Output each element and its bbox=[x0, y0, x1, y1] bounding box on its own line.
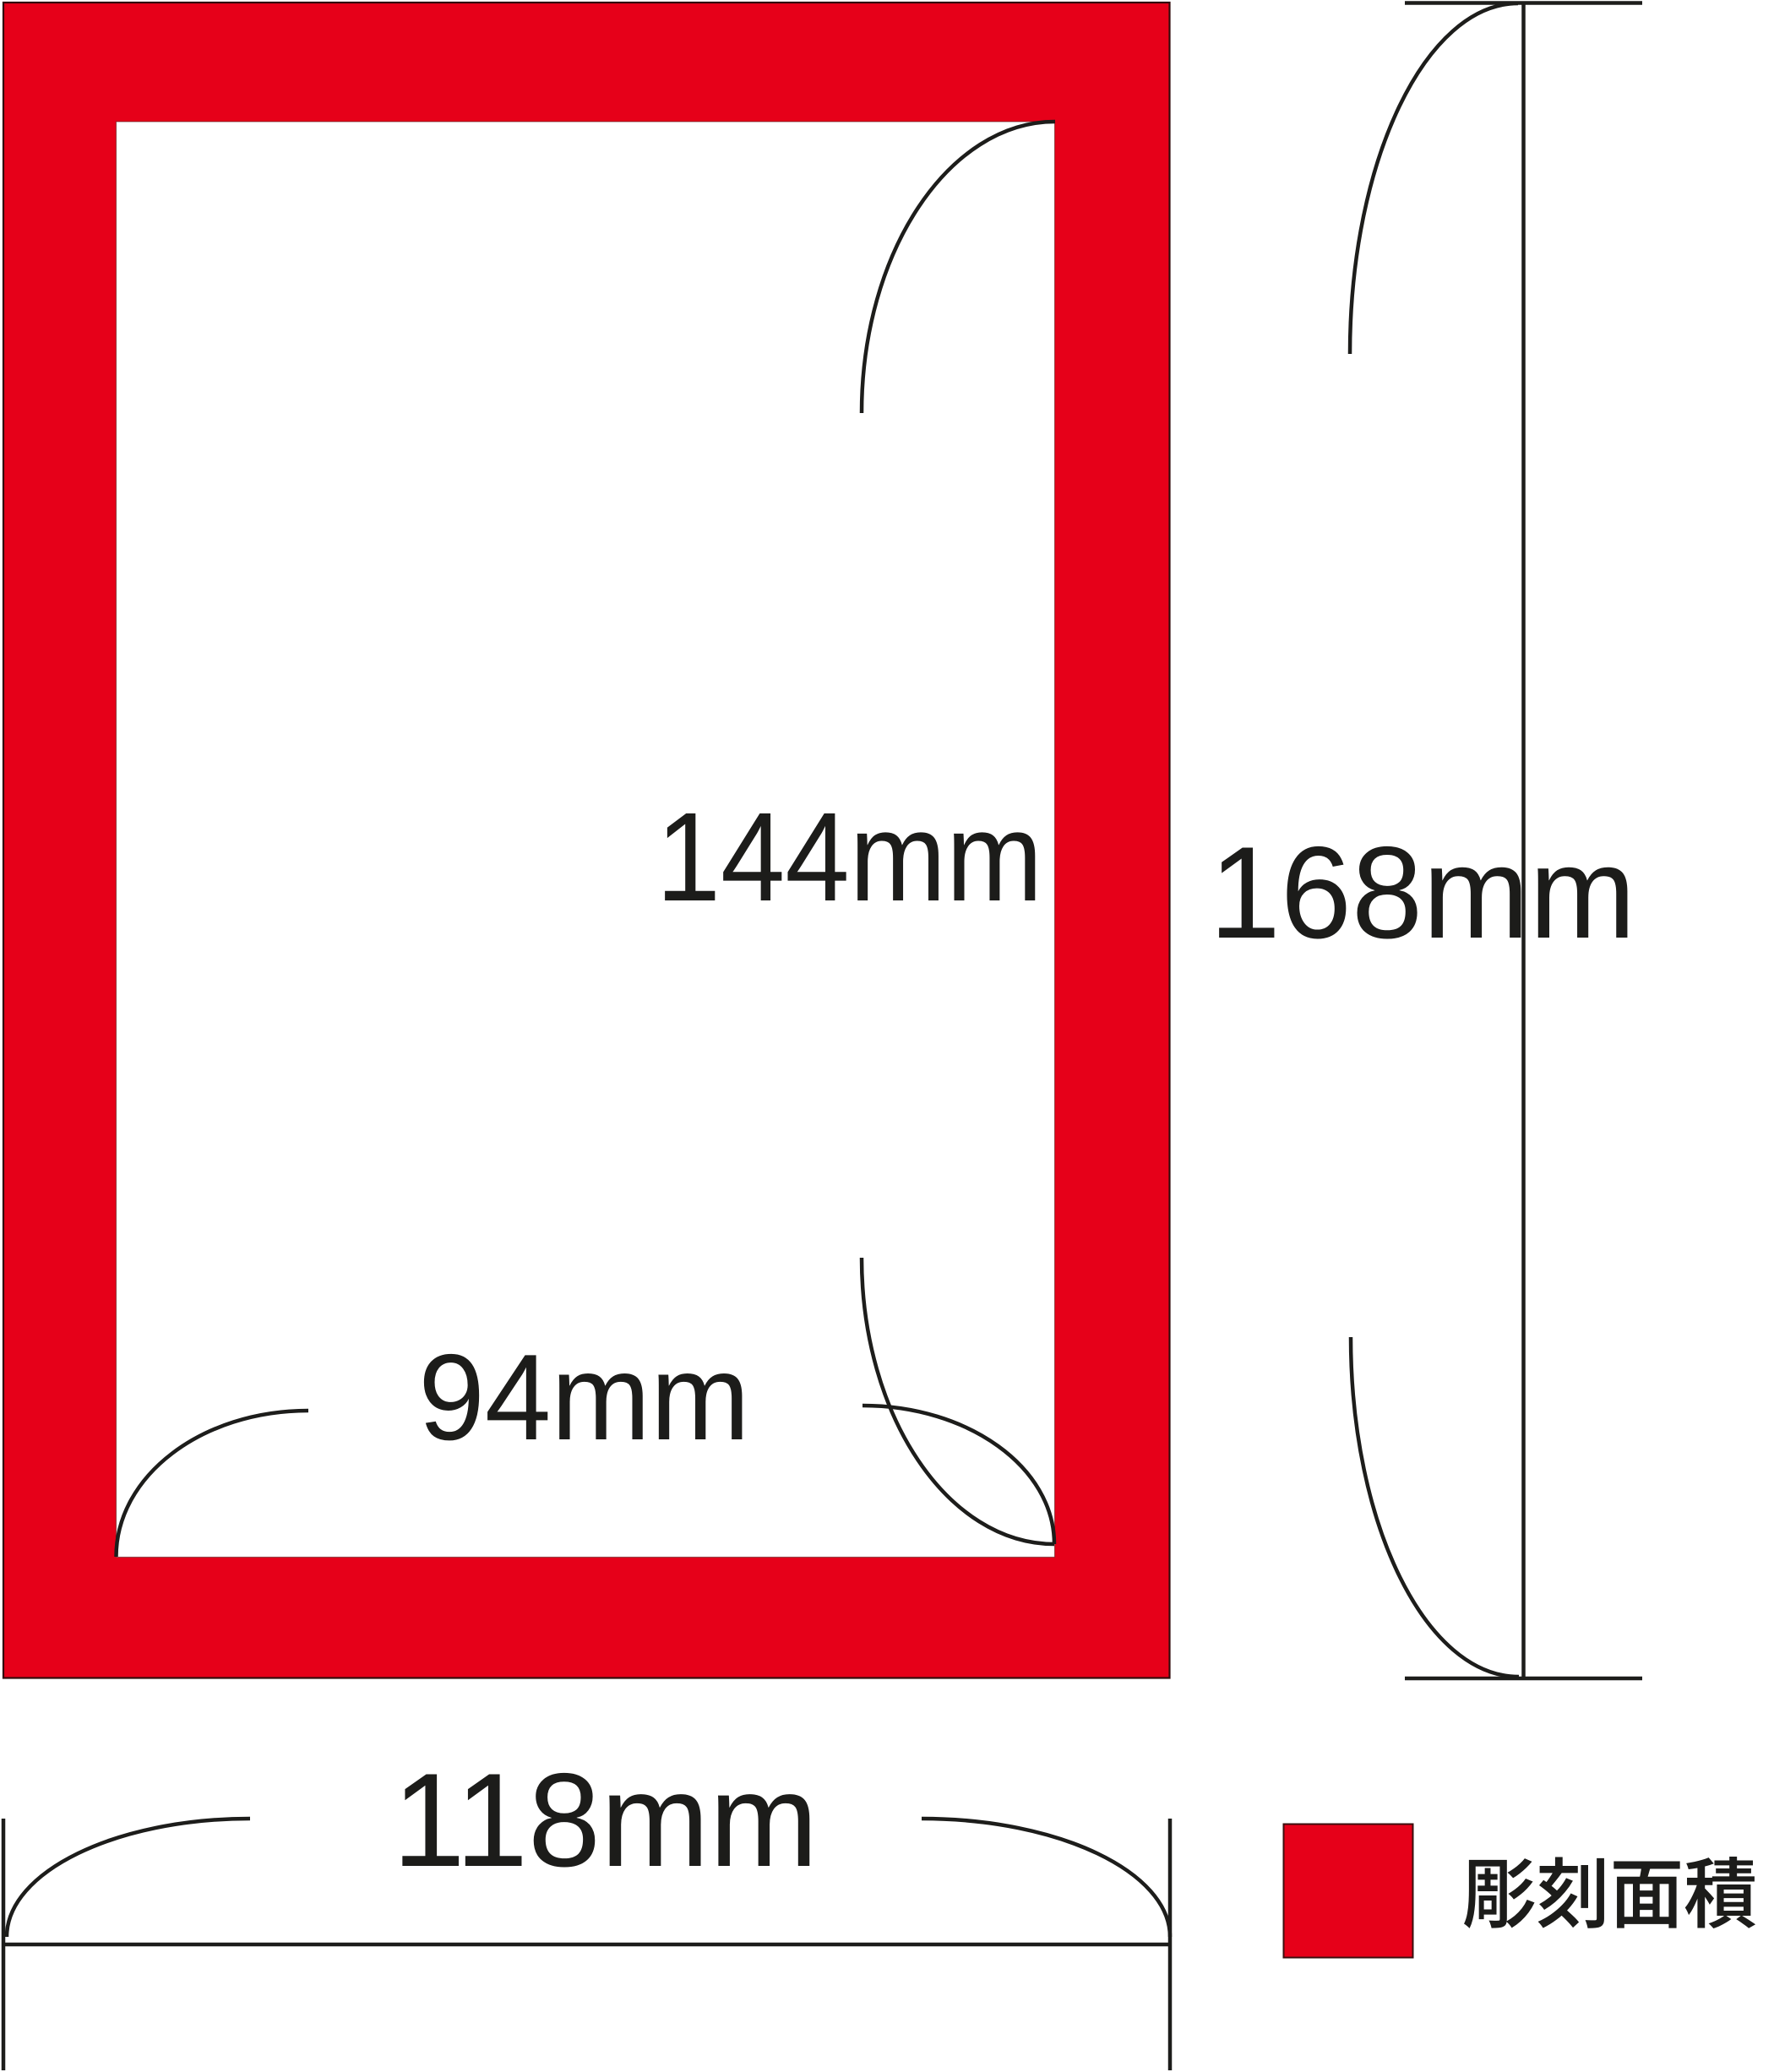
svg-text:168mm: 168mm bbox=[1210, 819, 1636, 965]
svg-text:118mm: 118mm bbox=[393, 1747, 819, 1895]
svg-text:94mm: 94mm bbox=[418, 1329, 749, 1466]
svg-text:144mm: 144mm bbox=[656, 786, 1043, 927]
